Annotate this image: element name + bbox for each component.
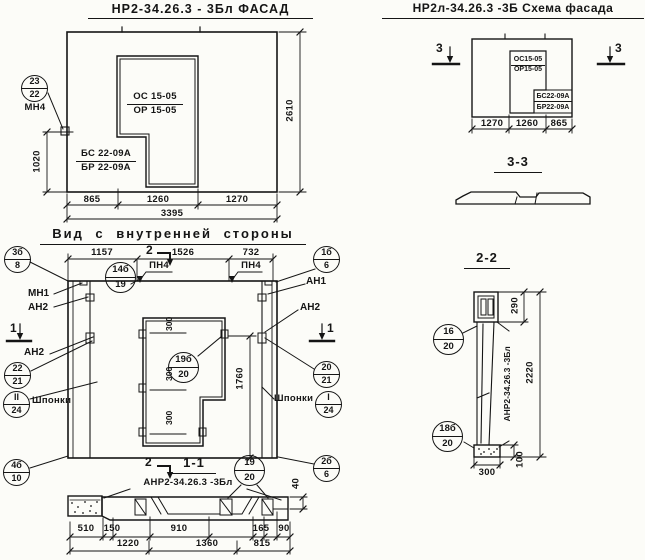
facade-callout-mn4: 2322: [21, 75, 48, 102]
section-2-2-stipple: [478, 448, 498, 455]
inner-anchor-an2-left: АН2: [24, 347, 44, 359]
section-2-2-callout-head: 1620: [433, 324, 464, 355]
inner-callout-left-mid: 2221: [4, 362, 31, 389]
inner-cut-mark-2-top: 2: [146, 244, 153, 258]
facade-dim-1270: 1270: [211, 195, 263, 206]
facade-dim-1260: 1260: [132, 195, 184, 206]
section-2-2-mark-label: АНР2-34.26.3 -3Бл: [503, 329, 513, 439]
facade-dim-3395: 3395: [146, 209, 198, 220]
section-1-1-mark-label: АНР2-34.26.3 -3Бл: [123, 478, 253, 489]
section-2-2-dim-290: 290: [511, 292, 522, 318]
section-2-2-dim-100: 100: [516, 446, 527, 472]
inner-dim-1157: 1157: [76, 248, 128, 259]
inner-anchor-an1: АН1: [306, 276, 326, 288]
facade-callout-label: МН4: [19, 103, 51, 114]
inner-anchor-an2-left-top: АН2: [28, 302, 48, 314]
scheme-opening-mark-bottom: ОР15-05: [511, 66, 545, 74]
section-1-1-dim-910: 910: [163, 524, 195, 535]
inner-dim-300-1: 300: [165, 311, 175, 337]
scheme-opening-mark-top: ОС15-05: [511, 56, 545, 66]
inner-callout-top-left: 3б8: [4, 246, 31, 273]
facade-dim-865: 865: [66, 195, 118, 206]
section-1-1-dim-815: 815: [243, 539, 281, 550]
section-2-2-callout-base: 18б20: [432, 421, 463, 452]
section-3-3-profile: [456, 192, 590, 204]
facade-opening-mark-bottom: ОР 15-05: [127, 106, 183, 117]
inner-keys-label-right: Шпонки: [274, 394, 313, 405]
scheme-title: НР2л-34.26.3 -3Б Схема фасада: [382, 2, 644, 19]
scheme-dim-1270: 1270: [475, 119, 509, 130]
section-2-2-dim-2220: 2220: [526, 353, 537, 391]
facade-linework: [43, 27, 306, 222]
section-2-2-title: 2-2: [464, 251, 510, 269]
facade-panel-mark-top: БС 22-09А: [76, 149, 136, 162]
inner-dim-1760: 1760: [236, 359, 247, 397]
inner-dim-732: 732: [229, 248, 273, 259]
section-3-3-title: 3-3: [494, 155, 542, 173]
inner-callout-right-mid: 2021: [313, 361, 340, 388]
inner-keys-label-left: Шпонки: [32, 396, 71, 407]
scheme-dim-1260: 1260: [510, 119, 544, 130]
inner-dim-300-3: 300: [165, 405, 175, 431]
inner-callout-top-right: 1б6: [313, 246, 340, 273]
inner-cut-mark-2-bottom: 2: [145, 456, 152, 470]
section-1-1-title: 1-1: [172, 456, 216, 474]
inner-cut-mark-1-left: 1: [10, 322, 17, 336]
inner-callout-top-mid: 14б19: [105, 262, 136, 293]
inner-view-title: Вид с внутренней стороны: [40, 227, 306, 245]
inner-cut-mark-1-right: 1: [327, 322, 334, 336]
inner-callout-left-keys: II24: [3, 391, 30, 418]
facade-panel-mark-bottom: БР 22-09А: [76, 163, 136, 174]
scheme-block-mark-top: БС22-09А: [535, 93, 571, 101]
inner-loop-label-2: ПН4: [237, 261, 265, 272]
facade-dim-1020: 1020: [33, 145, 44, 177]
section-1-1-stipple: [71, 501, 98, 514]
facade-dim-2610: 2610: [286, 94, 297, 126]
inner-anchor-an2-right: АН2: [300, 302, 320, 314]
section-1-1-dim-1360: 1360: [187, 539, 227, 550]
inner-callout-bottom-right: 2б6: [313, 455, 340, 482]
facade-opening-mark-top: ОС 15-05: [127, 92, 183, 105]
section-1-1-dim-90: 90: [271, 524, 297, 535]
section-1-1-dim-1220: 1220: [108, 539, 148, 550]
inner-callout-right-keys: I24: [315, 391, 342, 418]
facade-title: НР2-34.26.3 - 3Бл ФАСАД: [88, 2, 313, 19]
section-1-1-dim-150: 150: [96, 524, 128, 535]
inner-loop-label-1: ПН4: [145, 261, 173, 272]
scheme-cut-mark-left: 3: [436, 42, 443, 56]
section-1-1-dim-40: 40: [292, 470, 303, 496]
scheme-block-mark-bottom: БР22-09А: [535, 104, 571, 112]
inner-anchor-mn1: МН1: [28, 288, 49, 300]
scheme-cut-mark-right: 3: [615, 42, 622, 56]
drawing-sheet: НР2-34.26.3 - 3Бл ФАСАД ОС 15-05 ОР 15-0…: [0, 0, 645, 560]
inner-callout-bottom-left: 4б10: [3, 459, 30, 486]
section-2-2-dim-300: 300: [473, 468, 501, 479]
inner-dim-300-2: 300: [165, 361, 175, 387]
scheme-dim-865: 865: [546, 119, 572, 130]
inner-dim-1526: 1526: [157, 248, 209, 259]
